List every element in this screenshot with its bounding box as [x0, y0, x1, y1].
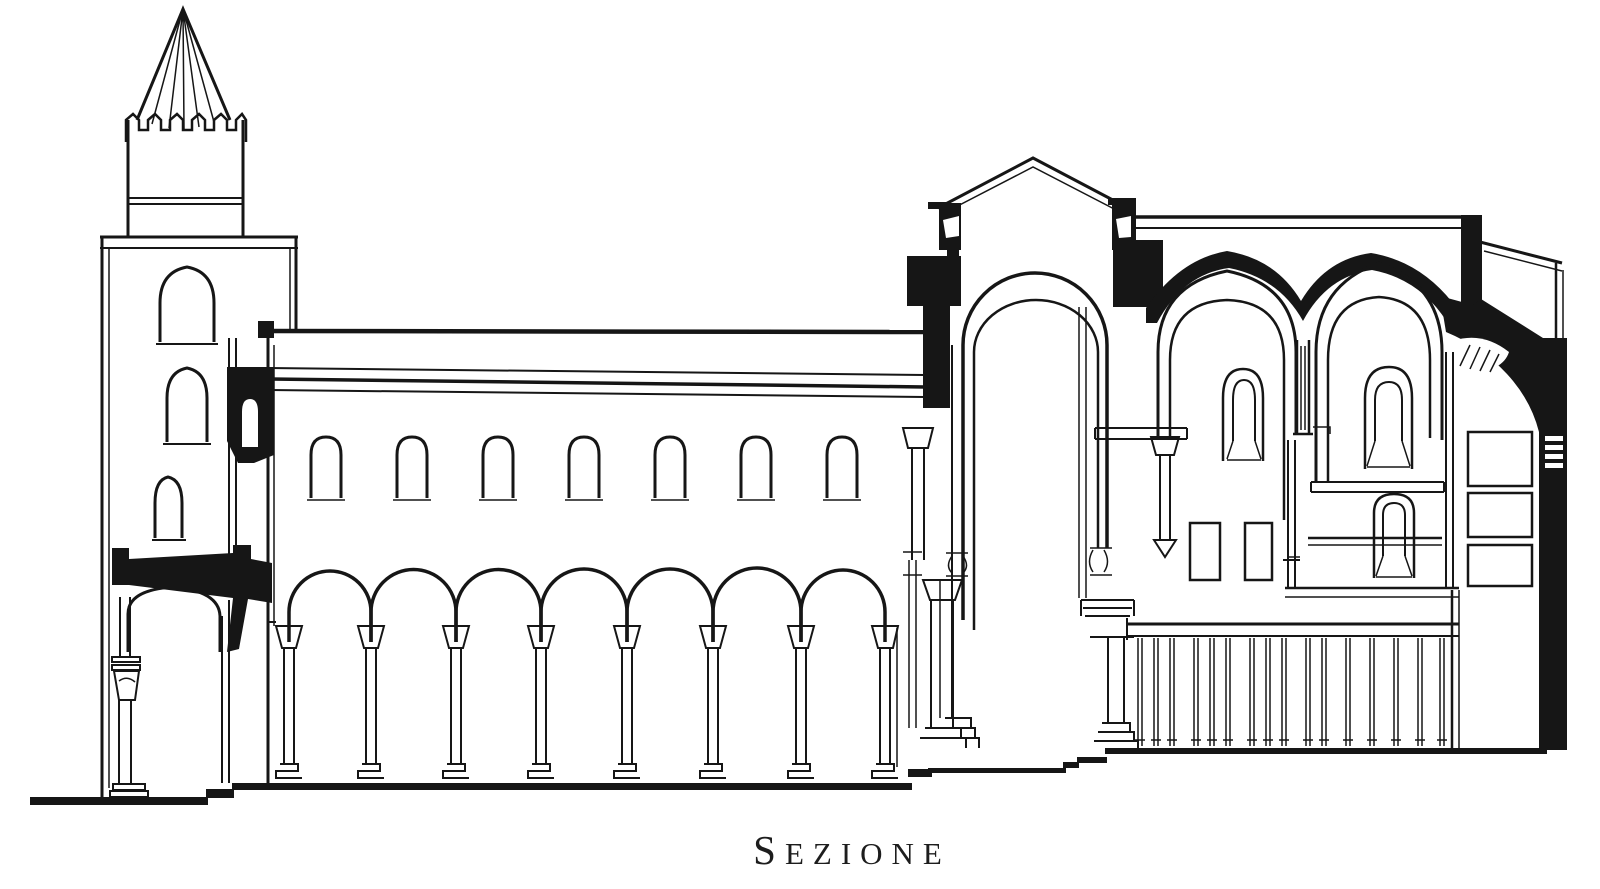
- porch: [110, 545, 272, 797]
- crossing-east-leg: [1081, 548, 1138, 748]
- tower-belfry: [128, 120, 243, 237]
- nave-arcade: [289, 568, 885, 642]
- choir-windows: [1223, 369, 1263, 461]
- scanned-drawing-page: SEZIONE: [0, 0, 1600, 889]
- tower-cornice: [100, 237, 298, 248]
- clerestory-windows: [307, 437, 861, 500]
- choir-niches: [1365, 367, 1414, 578]
- porch-arch: [128, 587, 220, 652]
- apse: [1440, 242, 1567, 750]
- crossing-piers: [907, 202, 1162, 598]
- nave: [227, 321, 925, 783]
- tower-spire: [137, 9, 230, 129]
- tower-windows: [152, 267, 218, 540]
- section-drawing: [0, 0, 1600, 889]
- arcade-columns: [268, 622, 898, 778]
- choir-panels: [1190, 523, 1272, 580]
- caption: SEZIONE: [102, 826, 1600, 874]
- right-wall: [1539, 432, 1567, 750]
- nave-roof: [262, 331, 925, 397]
- choir-vault-band: [1146, 251, 1452, 330]
- apse-semidome: [1440, 296, 1567, 432]
- balustrade: [1127, 618, 1459, 746]
- porch-column: [110, 597, 148, 797]
- crossing: [903, 158, 1162, 748]
- apse-chambers: [1452, 432, 1532, 748]
- choir: [1095, 215, 1482, 746]
- choir-ledges: [1285, 352, 1459, 597]
- inter-bay-pier: [1283, 340, 1330, 588]
